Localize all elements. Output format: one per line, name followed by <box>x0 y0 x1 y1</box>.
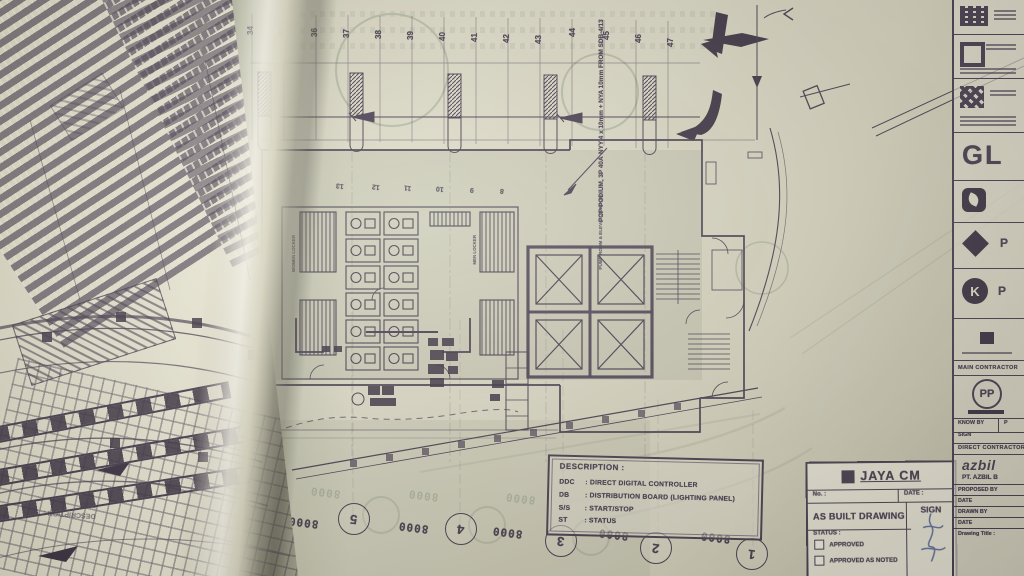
checkbox-icon <box>814 540 824 550</box>
sign-cell: SIGN <box>906 501 956 576</box>
direct-contractor-label: DIRECT CONTRACTOR <box>958 445 1024 451</box>
bubble-number: 1 <box>747 546 756 562</box>
pp-logo-underline <box>968 410 1004 414</box>
column-marker <box>110 438 120 448</box>
grid-number: 41 <box>470 33 479 42</box>
stamp-box-3 <box>954 78 1024 133</box>
proposed-by-label: PROPOSED BY <box>958 487 998 493</box>
grid-number: 35 <box>278 27 287 36</box>
legend-title: DESCRIPTION : <box>560 462 625 473</box>
grid-number: 9 <box>470 186 475 193</box>
column-marker <box>198 452 208 462</box>
legend-abbr: DB <box>559 492 585 500</box>
column-marker <box>192 318 202 328</box>
stamp-box-2 <box>954 34 1024 79</box>
know-by-label: KNOW BY <box>958 420 984 426</box>
azbil-block: azbil PT. AZBIL B PROPOSED BY DATE DRAWN… <box>954 454 1024 576</box>
stamp-p-text: P <box>1004 420 1008 426</box>
status-option-approved: APPROVED <box>814 539 864 550</box>
company-logo-icon <box>841 470 854 483</box>
stamp-p-text: P <box>998 284 1006 298</box>
stamp-logo-icon <box>960 6 988 26</box>
stamp-logo-icon <box>960 42 985 67</box>
direct-contractor-band: DIRECT CONTRACTOR <box>954 441 1024 455</box>
drawing-title-label: Drawing Title : <box>958 531 995 537</box>
grid-number: 39 <box>406 31 415 40</box>
column-marker <box>248 350 258 360</box>
stamp-logo-icon <box>980 332 994 344</box>
status-label: STATUS : <box>808 529 911 537</box>
grid-bubble: 5 <box>338 503 370 535</box>
stamp-logo-k-icon: K <box>962 278 988 304</box>
blueprint-photo: 34 35 36 37 38 39 40 41 42 43 44 45 46 4… <box>0 0 1024 576</box>
stamp-logo-diamond-icon <box>962 230 989 257</box>
pp-logo-icon: PP <box>972 379 1002 409</box>
legend-box: DESCRIPTION : DDC : DIRECT DIGITAL CONTR… <box>546 454 764 540</box>
drawing-title-row: Drawing Title : <box>954 528 1024 576</box>
stamp-strip: GL P K P MAIN CONTRACTOR PP KNOW BY P <box>952 0 1024 576</box>
grid-number: 11 <box>404 184 412 192</box>
signature-scribble <box>909 509 954 571</box>
legend-abbr: DDC <box>559 479 585 487</box>
checkbox-icon <box>814 556 824 566</box>
grid-number: 44 <box>568 28 577 37</box>
date-label: DATE <box>958 498 972 504</box>
grid-number: 12 <box>372 183 381 191</box>
legend-text: : START/STOP <box>585 505 634 513</box>
main-contractor-band: MAIN CONTRACTOR <box>954 360 1024 376</box>
stamp-box-swoosh <box>954 180 1024 223</box>
date-label: DATE <box>958 520 972 526</box>
stamp-p-text: P <box>1000 236 1008 250</box>
main-contractor-label: MAIN CONTRACTOR <box>958 365 1018 371</box>
stamp-box-pp: PP <box>954 375 1024 419</box>
bubble-number: 2 <box>651 540 660 556</box>
drawing-type: AS BUILT DRAWING <box>808 502 911 531</box>
grid-bubble: 4 <box>445 513 477 545</box>
sign-label: SIGN <box>958 432 971 438</box>
company-name: JAYA CM <box>860 469 921 484</box>
legend-item: ST : STATUS <box>558 517 616 525</box>
room-label-men-locker: MEN LOCKER <box>472 235 477 265</box>
legend-text: : STATUS <box>584 517 616 525</box>
annotation-line: FROM SDB-4/13 <box>598 20 640 69</box>
status-option-label: APPROVED <box>829 541 864 548</box>
stamp-box-1 <box>954 0 1024 35</box>
grid-number: 37 <box>342 29 351 38</box>
bubble-number: 5 <box>349 511 358 527</box>
status-option-label: APPROVED AS NOTED <box>829 556 897 564</box>
title-block: JAYA CM No. : DATE : AS BUILT DRAWING SI… <box>805 460 957 576</box>
azbil-company: PT. AZBIL B <box>962 474 998 481</box>
grid-number: 38 <box>374 30 383 39</box>
grid-number: 34 <box>246 26 255 35</box>
grid-number: 13 <box>336 182 345 190</box>
grid-number: 36 <box>310 28 319 37</box>
drawn-by-label: DRAWN BY <box>958 509 987 515</box>
grid-number: 10 <box>436 185 445 193</box>
grid-number: 47 <box>666 38 675 47</box>
legend-abbr: ST <box>558 517 584 525</box>
status-option-approved-as-noted: APPROVED AS NOTED <box>814 555 897 566</box>
stamp-box-small <box>954 318 1024 361</box>
gl-logo-text: GL <box>962 140 1004 171</box>
bubble-number: 4 <box>456 521 465 537</box>
room-label-women-locker: WOMEN LOCKER <box>291 235 296 272</box>
stamp-logo-icon <box>960 86 984 108</box>
grid-number: 8 <box>500 187 505 194</box>
stamp-box-k: K P <box>954 268 1024 319</box>
room-label-pump: PUMP ROOM & ELEVATOR ROOM <box>598 195 610 269</box>
grid-number: 43 <box>534 35 543 44</box>
no-label: No. : <box>808 489 899 503</box>
annotation-line: NYY 4 x 10mm + NYA 10mm <box>598 70 640 154</box>
grid-number: 42 <box>502 34 511 43</box>
title-block-header: JAYA CM <box>807 462 954 491</box>
azbil-brand: azbil <box>962 457 996 473</box>
stamp-box-diamond: P <box>954 222 1024 269</box>
date-label: DATE : <box>899 489 924 502</box>
grid-bubble: 1 <box>736 538 768 570</box>
legend-abbr: S/S <box>559 505 585 513</box>
stamp-box-gl: GL <box>954 132 1024 181</box>
grid-number: 40 <box>438 32 447 41</box>
